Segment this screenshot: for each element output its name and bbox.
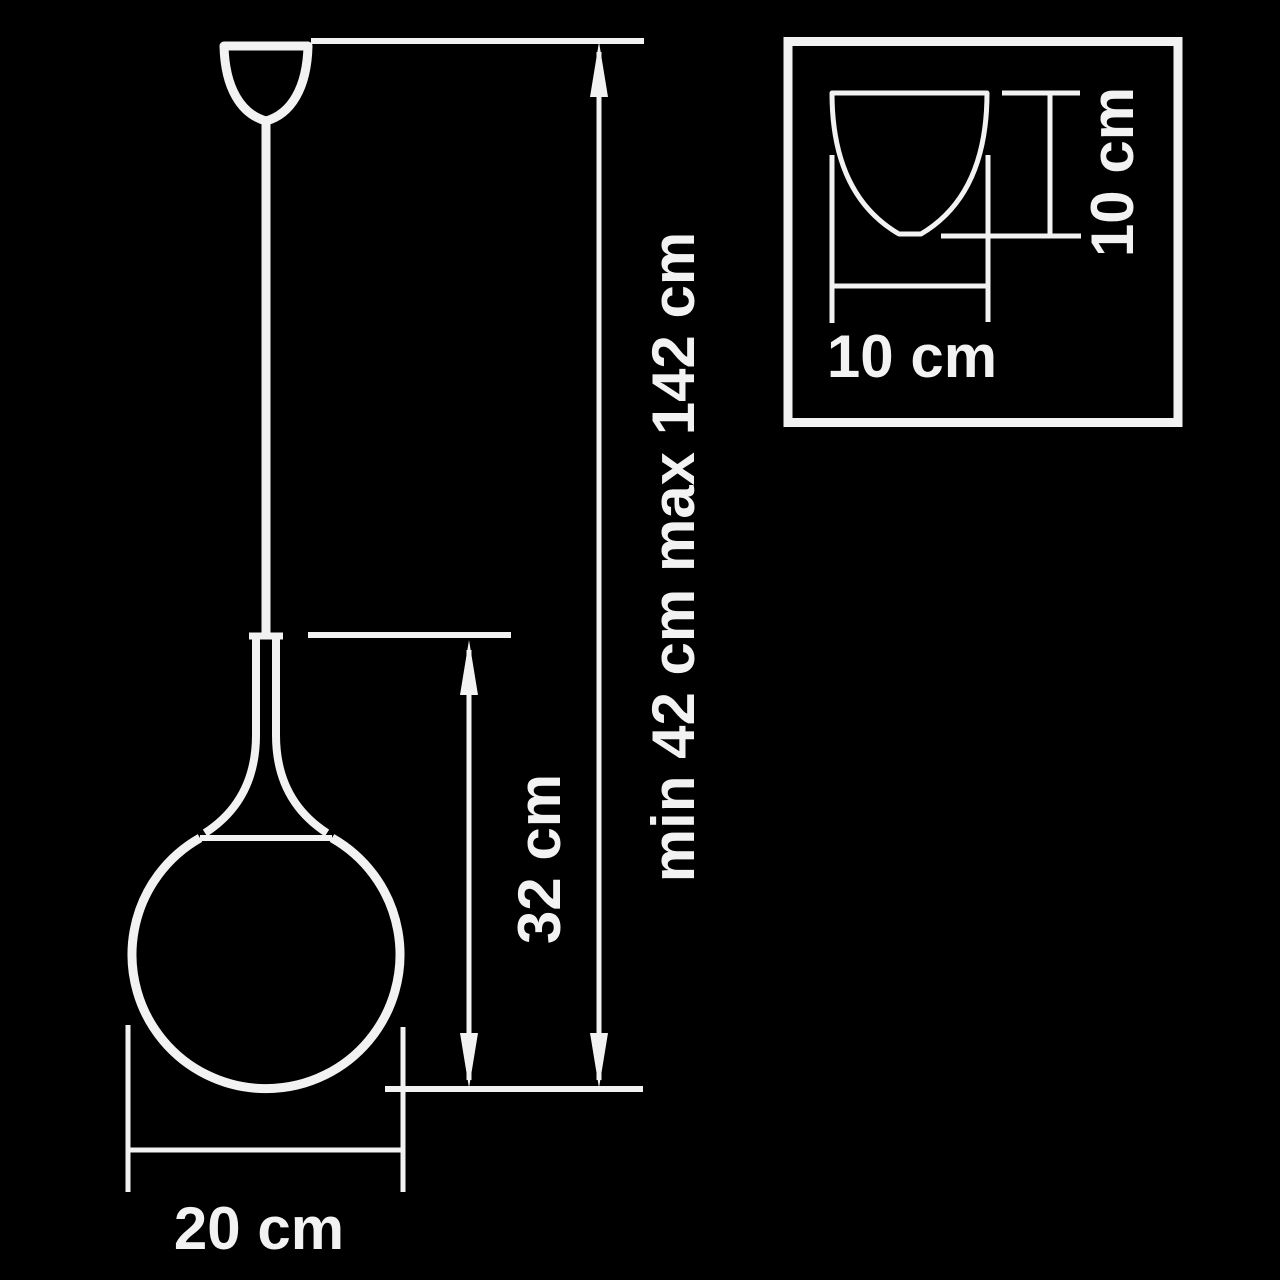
arrowhead-down-icon — [460, 1033, 478, 1088]
pendant-lamp — [132, 46, 400, 1089]
arrowhead-down-icon — [590, 1033, 608, 1088]
inset-canopy-outline — [832, 93, 987, 234]
pendant-dimension-diagram: min 42 cm max 142 cm 32 cm 20 cm 10 cm 1… — [0, 0, 1280, 1280]
arrowhead-up-icon — [460, 640, 478, 695]
inset-height-dimension — [941, 93, 1081, 236]
arrowhead-up-icon — [590, 42, 608, 97]
ceiling-canopy — [224, 46, 308, 121]
shade-height-label: 32 cm — [510, 774, 570, 944]
shade-diameter-label: 20 cm — [174, 1199, 344, 1259]
total-height-label: min 42 cm max 142 cm — [644, 232, 704, 882]
canopy-height-label: 10 cm — [1083, 87, 1143, 257]
glass-sphere — [132, 838, 400, 1089]
canopy-width-label: 10 cm — [827, 327, 997, 387]
neck-right-side — [276, 639, 327, 833]
neck-left-side — [205, 639, 256, 833]
inset-width-dimension — [832, 155, 988, 323]
